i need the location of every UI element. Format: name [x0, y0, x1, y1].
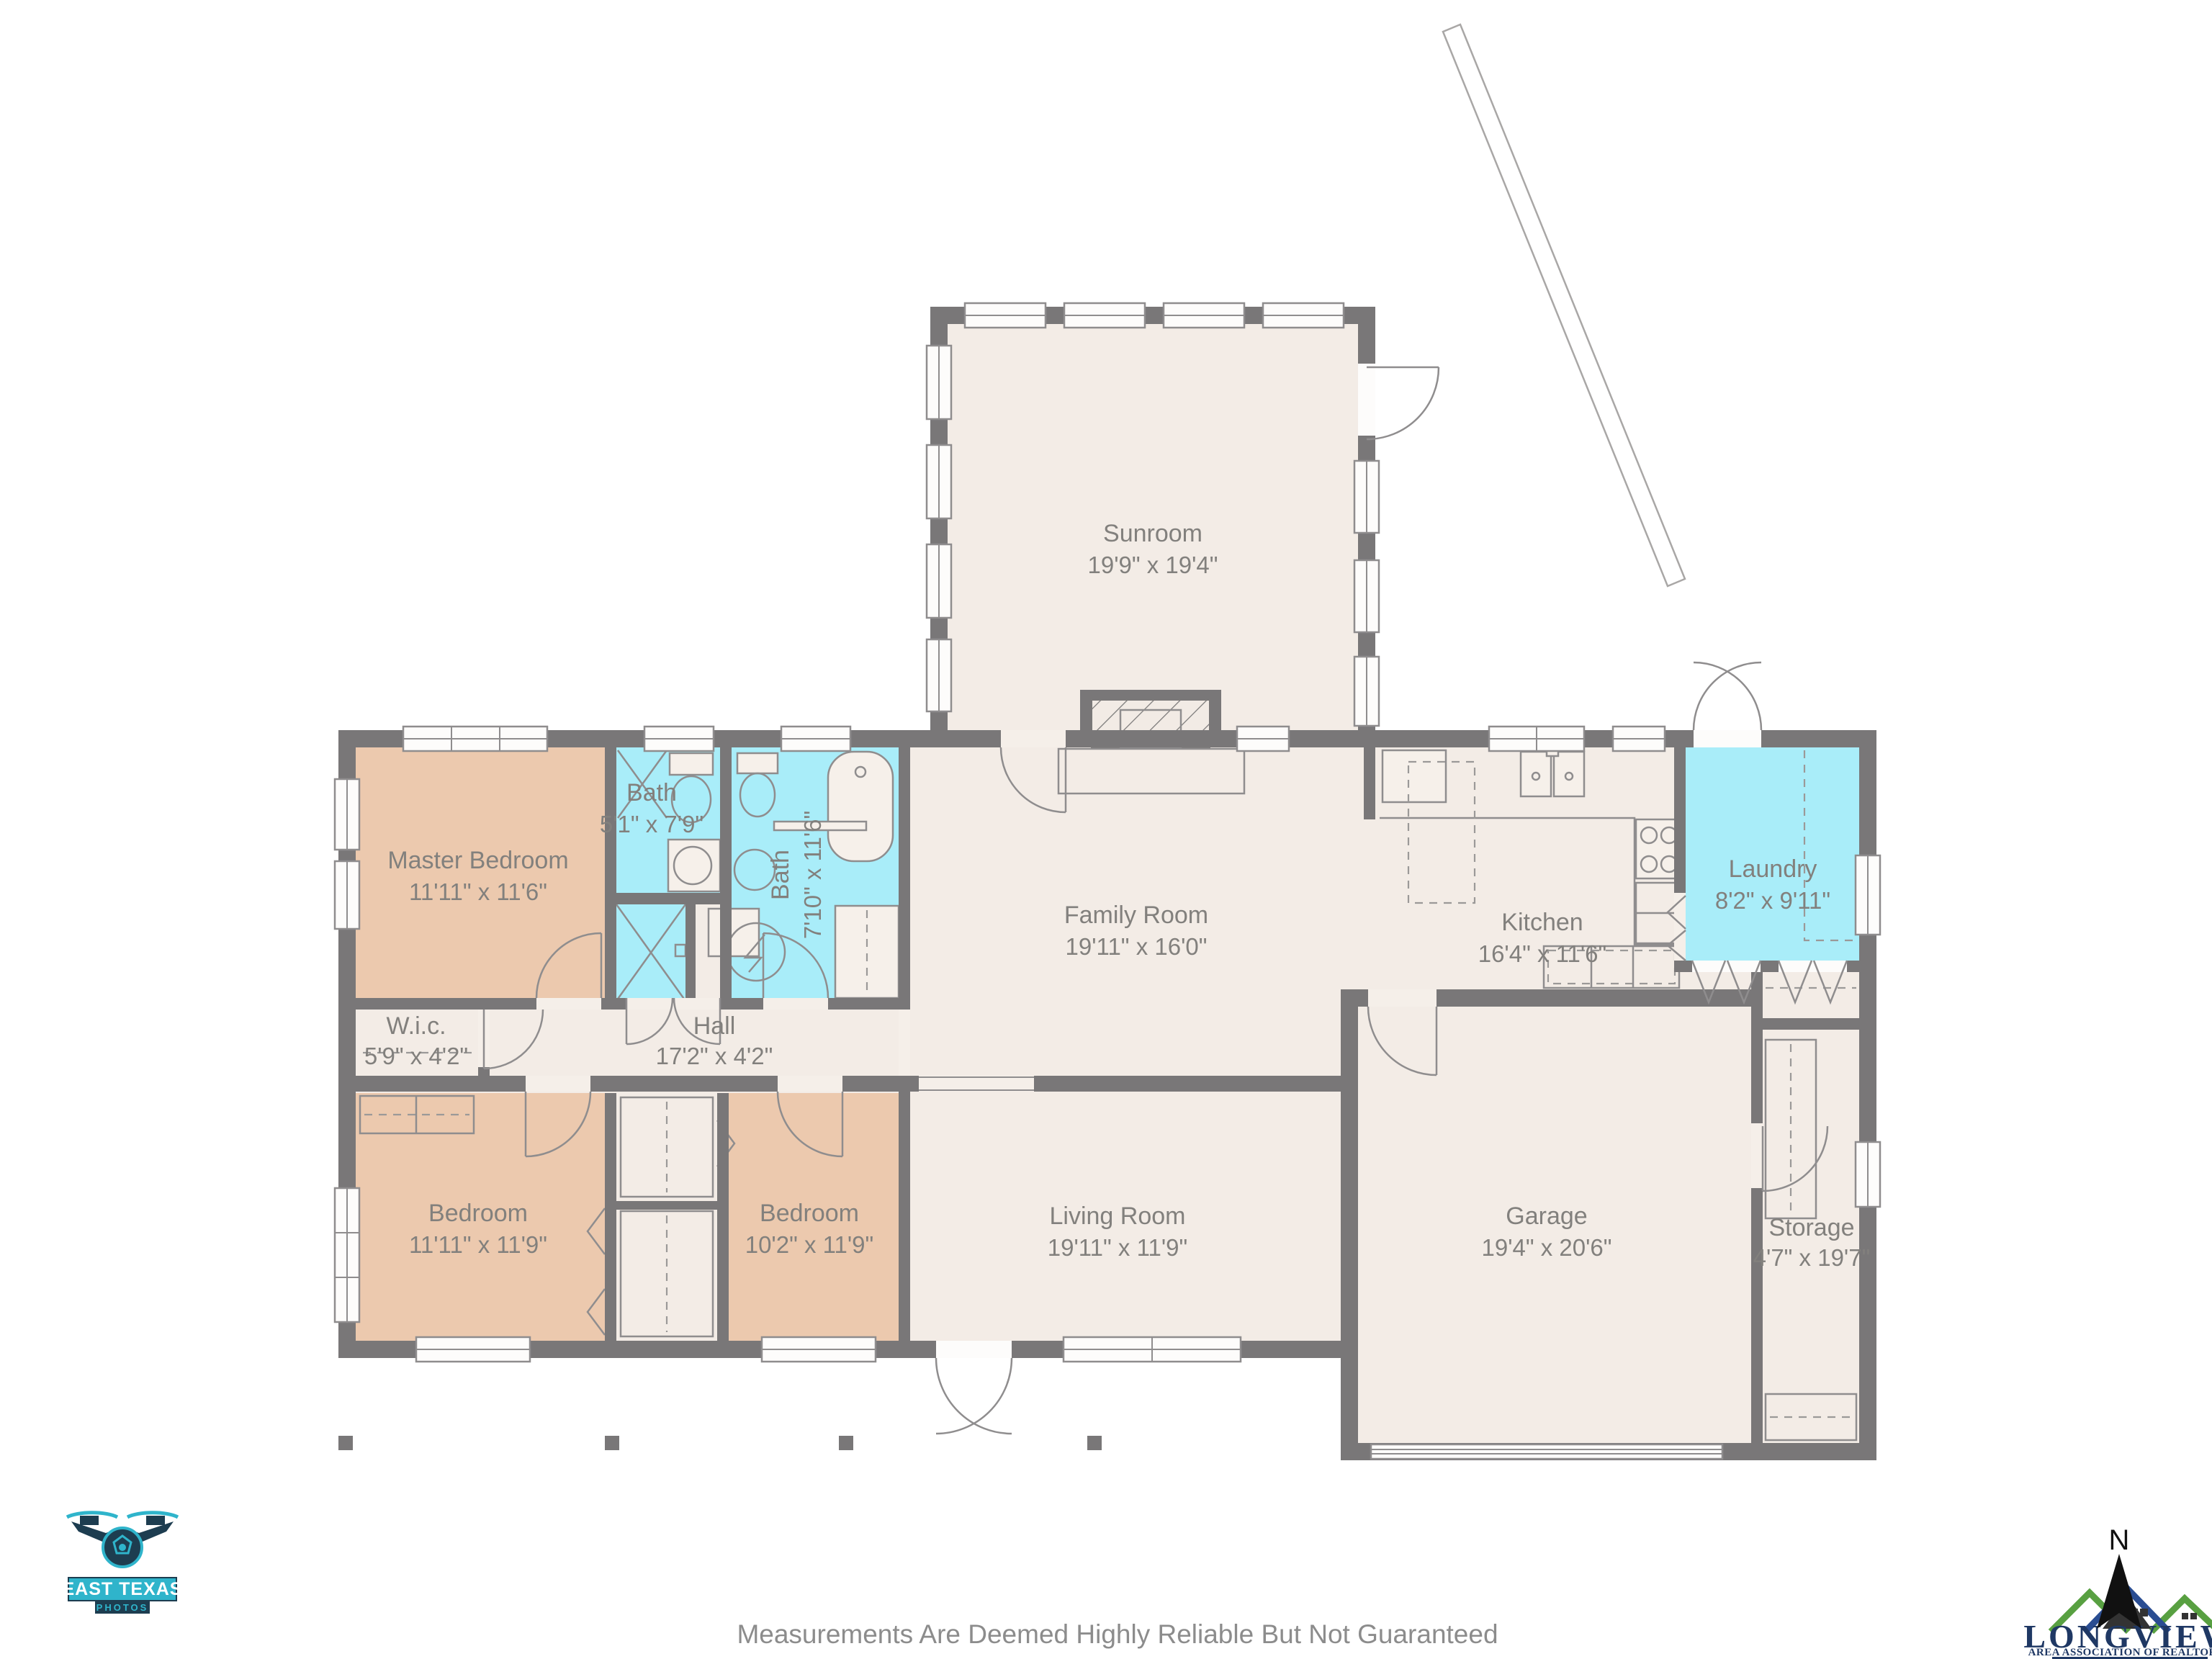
dims-family-room: 19'11" x 16'0"	[1066, 933, 1208, 960]
dims-wic: 5'9" x 4'2"	[364, 1043, 468, 1069]
label-bath-small: Bath	[626, 779, 677, 806]
opening-bath2	[763, 998, 828, 1010]
dims-bath-large: 7'10" x 11'6"	[799, 811, 826, 940]
wall-bath1-bath2	[720, 747, 732, 998]
wall-closet-bed2	[717, 1093, 729, 1341]
label-sunroom: Sunroom	[1103, 520, 1202, 547]
opening-kitchen-garage	[1368, 989, 1437, 1007]
dims-bath-small: 5'1" x 7'9"	[600, 811, 703, 837]
dims-storage: 4'7" x 19'7"	[1753, 1244, 1871, 1271]
garage-lower-floor	[1358, 1341, 1859, 1443]
opening-master	[536, 998, 601, 1010]
opening-hall-family	[899, 1010, 910, 1076]
wall-storage-divider	[1751, 972, 1763, 1460]
opening-sunroom-family	[1001, 730, 1066, 747]
opening-bed2	[778, 1076, 842, 1092]
label-family-room: Family Room	[1064, 902, 1208, 929]
dims-bedroom-left: 11'11" x 11'9"	[409, 1231, 547, 1258]
porch-post-4	[1087, 1436, 1102, 1450]
door-front-arc1	[936, 1358, 1012, 1434]
dims-living-room: 19'11" x 11'9"	[1048, 1234, 1187, 1261]
wall-kitchen-stub	[1364, 747, 1375, 819]
floor-plan-canvas: Sunroom 19'9" x 19'4" Master Bedroom 11'…	[0, 0, 2212, 1659]
toilet-tank	[670, 753, 713, 775]
door-laundry-ext-arc1	[1694, 662, 1761, 730]
house-window-2	[2140, 1609, 2148, 1617]
window-family-sunroom	[1237, 727, 1289, 751]
dims-sunroom: 19'9" x 19'4"	[1088, 552, 1218, 578]
opening-family-living	[919, 1076, 1034, 1092]
bathtub	[828, 752, 893, 861]
wall-bath2-family-upper	[899, 747, 910, 1010]
window-kitchen-top2	[1613, 727, 1665, 751]
wall-garage-left	[1341, 989, 1358, 1460]
toilet2-tank	[737, 753, 778, 773]
wall-hall-bottom	[356, 1076, 1341, 1092]
wall-bath1-bottom	[605, 893, 732, 904]
label-bedroom-middle: Bedroom	[760, 1200, 859, 1227]
label-kitchen: Kitchen	[1501, 909, 1583, 936]
opening-laundry-bifold2	[1779, 961, 1847, 972]
dims-bedroom-middle: 10'2" x 11'9"	[745, 1231, 874, 1258]
laundry-floor	[1686, 747, 1859, 961]
dims-master-bedroom: 11'11" x 11'6"	[409, 878, 547, 905]
door-sunroom-exterior	[1367, 367, 1439, 439]
porch-posts	[338, 1436, 1102, 1450]
opening-laundry-bifold1	[1692, 961, 1761, 972]
label-hall: Hall	[693, 1012, 736, 1040]
label-laundry: Laundry	[1729, 855, 1817, 883]
label-storage: Storage	[1768, 1214, 1854, 1241]
sink-basin-right	[1554, 752, 1584, 796]
diagonal-boundary-strip	[1443, 24, 1685, 586]
opening-bed1	[526, 1076, 590, 1092]
garage-door	[1371, 1444, 1722, 1459]
dims-laundry: 8'2" x 9'11"	[1715, 887, 1830, 914]
label-bath-large: Bath	[767, 850, 794, 900]
wall-master-bath	[605, 747, 616, 998]
floor-plan-page: Sunroom 19'9" x 19'4" Master Bedroom 11'…	[0, 0, 2212, 1659]
dims-garage: 19'4" x 20'6"	[1482, 1234, 1612, 1261]
label-bedroom-left: Bedroom	[428, 1200, 528, 1227]
porch-post-1	[338, 1436, 353, 1450]
opening-laundry-exterior	[1694, 730, 1761, 747]
wall-closet-mid	[605, 1201, 729, 1210]
disclaimer-text: Measurements Are Deemed Highly Reliable …	[737, 1619, 1498, 1649]
drone-motor-right	[146, 1516, 165, 1525]
drone-motor-left	[80, 1516, 99, 1525]
label-master-bedroom: Master Bedroom	[387, 847, 568, 874]
camera-aperture-center	[119, 1544, 126, 1551]
window-bath1-top	[644, 727, 714, 751]
porch-post-2	[605, 1436, 619, 1450]
sink-basin-left	[1521, 752, 1551, 796]
north-label: N	[2109, 1524, 2130, 1556]
window-bath2-top	[781, 727, 850, 751]
photographer-logo: EAST TEXAS PHOTOS	[63, 1513, 183, 1614]
kitchen-cabinet	[1382, 750, 1446, 802]
label-living-room: Living Room	[1050, 1202, 1186, 1230]
opening-garage-storage	[1751, 1123, 1763, 1188]
door-laundry-ext-arc2	[1694, 662, 1761, 730]
opening-sunroom-exterior	[1358, 364, 1375, 436]
opening-front-door	[936, 1341, 1012, 1358]
porch-post-3	[839, 1436, 853, 1450]
wall-shower-right	[685, 904, 696, 1001]
window-master-top	[403, 727, 547, 751]
wall-bed1-closet	[605, 1093, 616, 1341]
wall-bed2-living	[899, 1076, 910, 1341]
wall-mudroom-divider	[1763, 1018, 1859, 1030]
label-garage: Garage	[1506, 1202, 1587, 1230]
photographer-sub: PHOTOS	[96, 1602, 149, 1613]
wall-right	[1859, 730, 1876, 1460]
window-kitchen-top	[1489, 727, 1584, 751]
windows-sunroom-right	[1354, 461, 1379, 726]
dims-kitchen: 16'4" x 11'6"	[1478, 940, 1607, 967]
dims-hall: 17'2" x 4'2"	[656, 1043, 773, 1069]
label-wic: W.i.c.	[386, 1012, 446, 1040]
photographer-name: EAST TEXAS	[63, 1579, 183, 1599]
door-front-arc2	[936, 1358, 1012, 1434]
association-tagline: AREA ASSOCIATION OF REALTORS®	[2028, 1647, 2212, 1658]
